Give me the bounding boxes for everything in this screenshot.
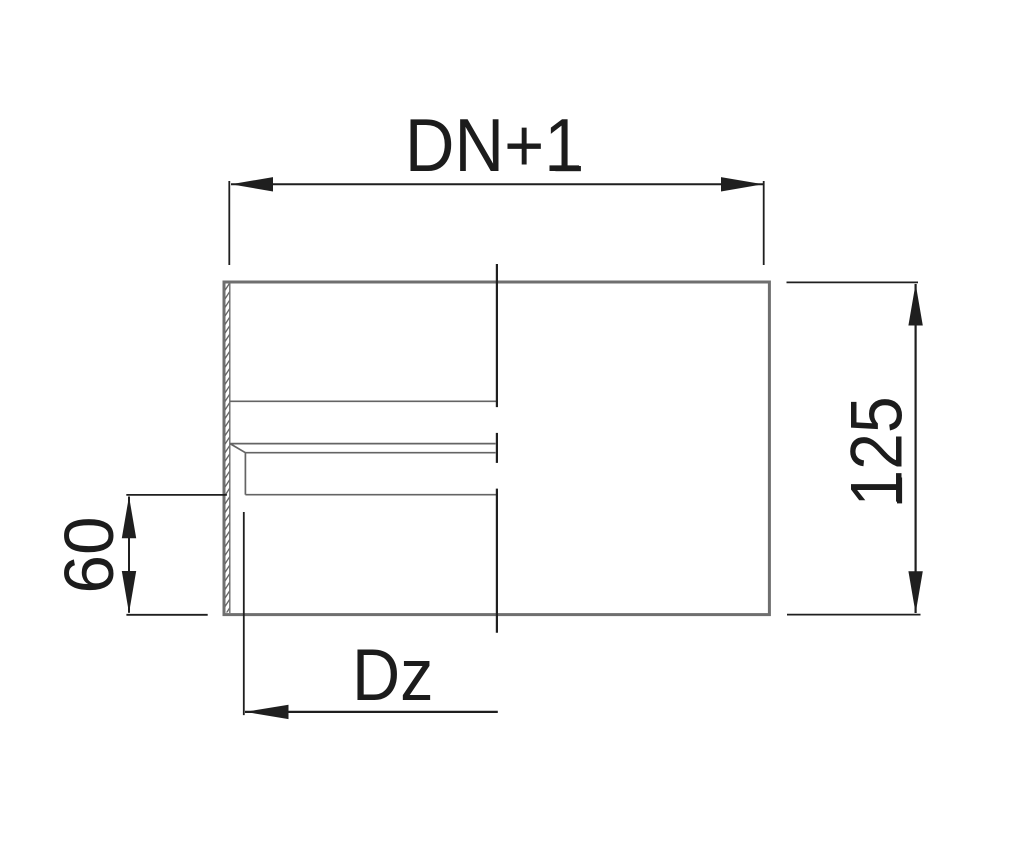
- svg-text:125: 125: [835, 396, 917, 506]
- svg-text:60: 60: [50, 516, 128, 593]
- svg-text:Dz: Dz: [352, 634, 433, 716]
- svg-text:DN+1: DN+1: [405, 104, 583, 187]
